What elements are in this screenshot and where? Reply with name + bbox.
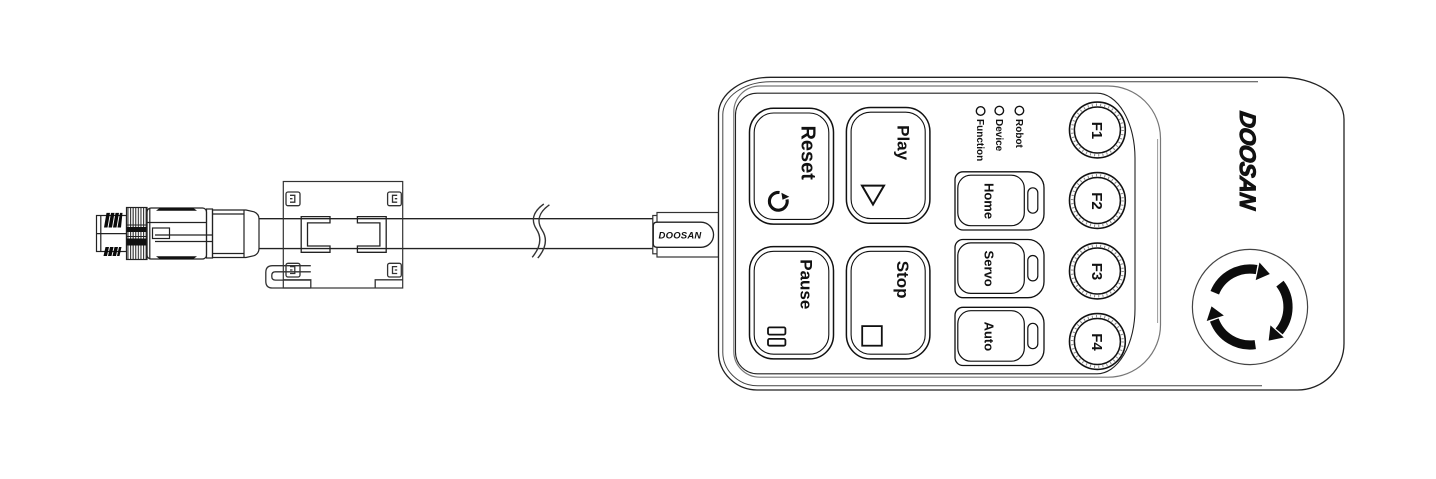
svg-text:Device: Device <box>993 119 1004 152</box>
svg-text:Reset: Reset <box>796 125 818 180</box>
svg-text:DOOSAN: DOOSAN <box>1235 110 1260 212</box>
svg-text:F3: F3 <box>1088 263 1105 281</box>
svg-text:Servo: Servo <box>981 251 996 287</box>
svg-text:F2: F2 <box>1088 192 1105 210</box>
svg-text:F4: F4 <box>1088 333 1105 351</box>
svg-text:Stop: Stop <box>893 261 912 299</box>
svg-text:Play: Play <box>894 125 913 161</box>
svg-text:Pause: Pause <box>797 259 816 309</box>
svg-text:Robot: Robot <box>1013 119 1024 149</box>
svg-text:Function: Function <box>974 119 985 161</box>
svg-text:F1: F1 <box>1088 122 1105 140</box>
svg-text:Auto: Auto <box>981 322 996 352</box>
svg-text:DOOSAN: DOOSAN <box>659 230 703 241</box>
svg-text:Home: Home <box>981 183 996 219</box>
